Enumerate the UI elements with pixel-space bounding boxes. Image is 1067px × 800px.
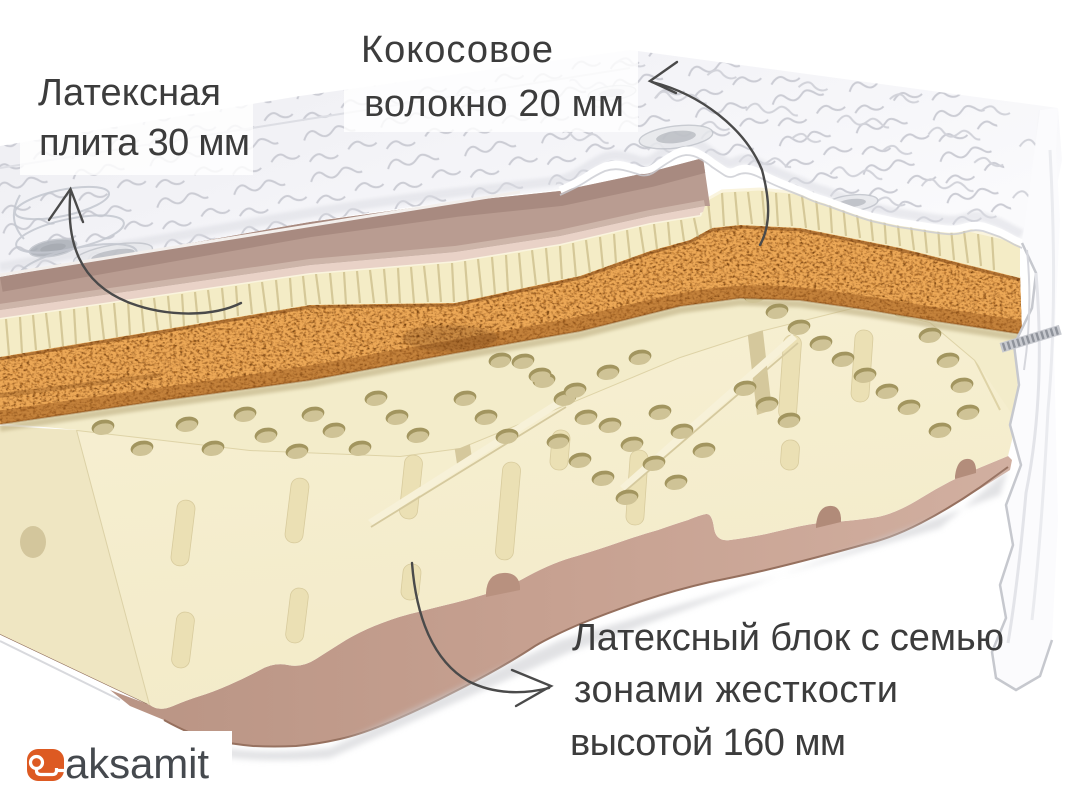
svg-text:Латексная: Латексная — [38, 72, 221, 114]
svg-text:Латексный блок с семью: Латексный блок с семью — [572, 617, 1004, 659]
svg-text:aksamit: aksamit — [65, 740, 209, 787]
svg-text:зонами жесткости: зонами жесткости — [574, 669, 898, 711]
svg-text:плита 30 мм: плита 30 мм — [39, 122, 250, 164]
svg-text:волокно 20 мм: волокно 20 мм — [364, 83, 624, 125]
svg-text:Кокосовое: Кокосовое — [361, 29, 553, 71]
svg-text:высотой 160 мм: высотой 160 мм — [570, 722, 846, 764]
